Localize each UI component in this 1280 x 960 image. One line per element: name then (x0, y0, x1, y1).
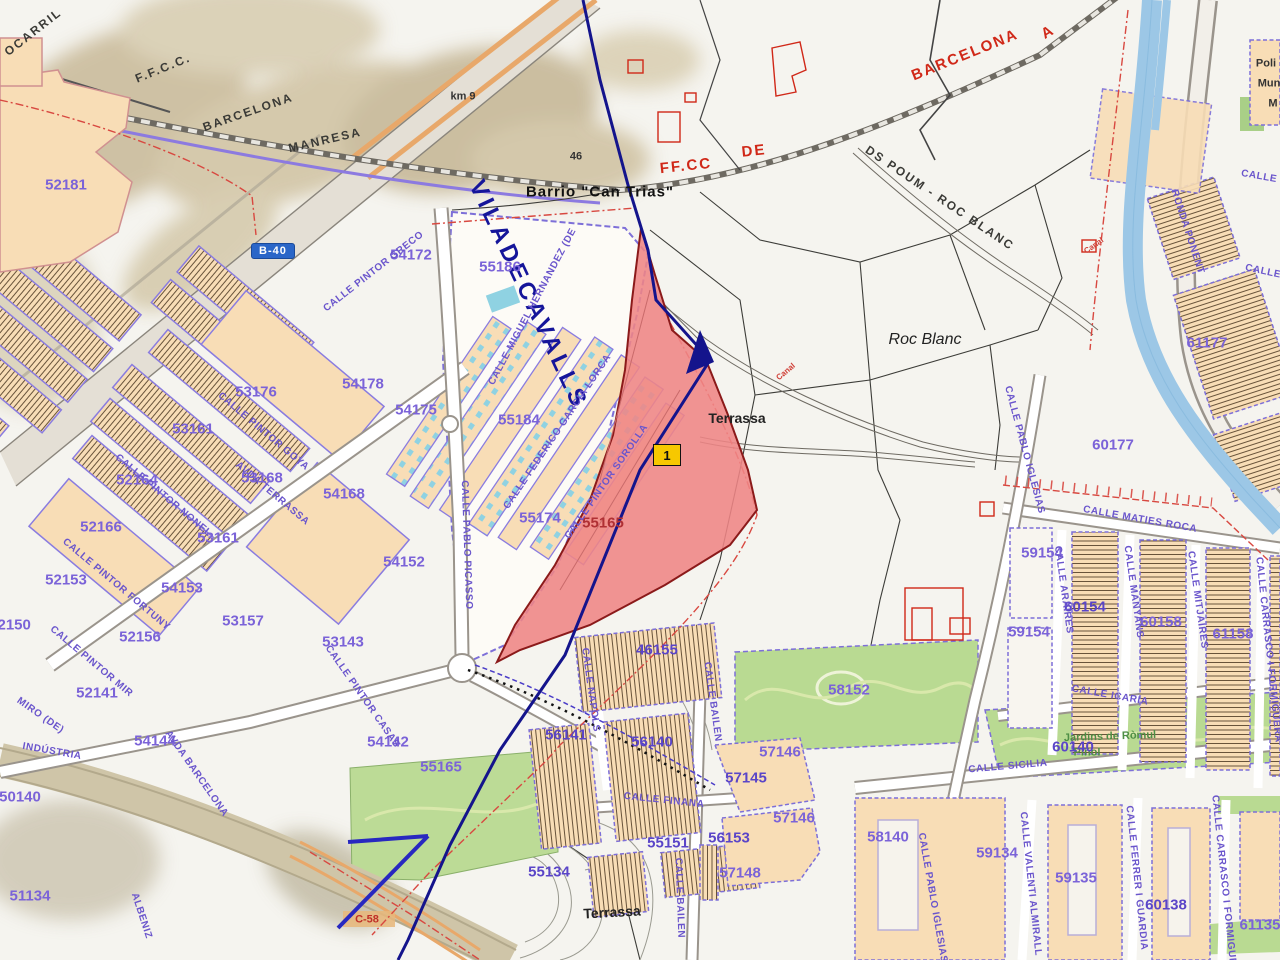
map-canvas (0, 0, 1280, 960)
map-viewport[interactable]: OCARRILF.F.C.C.BARCELONAMANRESAkm 946Bar… (0, 0, 1280, 960)
parcel-marker-1[interactable]: 1 (653, 444, 681, 466)
b40-road-badge: B-40 (251, 243, 295, 259)
